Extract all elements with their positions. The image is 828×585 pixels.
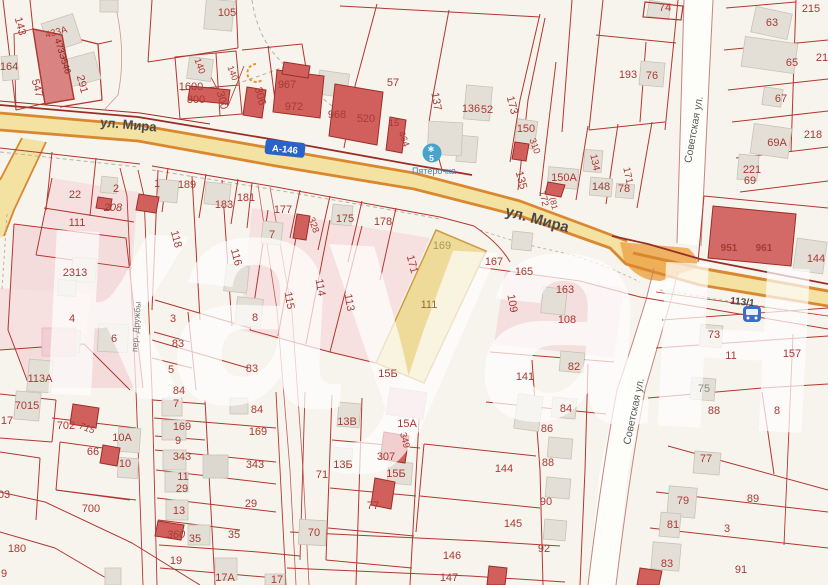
svg-text:189: 189 [178, 179, 196, 191]
svg-text:178: 178 [374, 216, 392, 228]
svg-text:113А: 113А [28, 373, 54, 385]
svg-text:19: 19 [170, 555, 182, 567]
svg-text:77: 77 [367, 500, 379, 512]
svg-text:11: 11 [725, 350, 736, 362]
svg-text:17А: 17А [215, 572, 235, 584]
svg-text:7015: 7015 [15, 400, 39, 412]
svg-text:13Б: 13Б [333, 459, 352, 471]
svg-text:21: 21 [816, 52, 828, 64]
svg-text:702: 702 [57, 420, 75, 432]
svg-text:169: 169 [249, 426, 267, 438]
svg-text:13: 13 [173, 505, 185, 517]
svg-text:300: 300 [187, 94, 205, 106]
svg-text:9: 9 [1, 568, 7, 580]
svg-text:15А: 15А [397, 418, 417, 430]
svg-text:11: 11 [177, 471, 188, 483]
svg-text:83: 83 [246, 363, 258, 375]
svg-text:88: 88 [708, 405, 720, 417]
svg-text:144: 144 [495, 463, 513, 475]
svg-text:3: 3 [724, 523, 730, 535]
svg-text:03: 03 [0, 489, 10, 501]
svg-text:10: 10 [119, 458, 131, 470]
svg-text:1: 1 [154, 178, 160, 190]
svg-text:136: 136 [462, 103, 480, 115]
svg-text:88: 88 [542, 457, 554, 469]
svg-text:82: 82 [568, 361, 580, 373]
svg-text:13В: 13В [337, 416, 357, 428]
svg-text:3: 3 [170, 313, 176, 325]
svg-text:9: 9 [175, 435, 181, 447]
svg-text:343: 343 [246, 459, 264, 471]
svg-text:108: 108 [558, 314, 576, 326]
svg-text:6: 6 [111, 333, 117, 345]
svg-text:81: 81 [667, 519, 679, 531]
svg-text:967: 967 [278, 79, 296, 91]
svg-text:84: 84 [560, 403, 572, 415]
svg-text:92: 92 [538, 543, 550, 555]
svg-text:1600: 1600 [179, 81, 203, 93]
svg-text:218: 218 [804, 129, 822, 141]
svg-text:75: 75 [698, 383, 710, 395]
svg-text:57: 57 [387, 77, 399, 89]
svg-text:74: 74 [659, 2, 671, 14]
svg-text:17: 17 [271, 574, 283, 585]
svg-text:4: 4 [69, 313, 75, 325]
svg-text:961: 961 [756, 243, 773, 254]
svg-text:8: 8 [252, 312, 258, 324]
svg-text:73: 73 [708, 329, 720, 341]
svg-text:69А: 69А [767, 137, 787, 149]
svg-text:2313: 2313 [63, 267, 87, 279]
svg-text:360: 360 [167, 529, 186, 541]
svg-text:215: 215 [802, 3, 820, 15]
svg-text:164: 164 [0, 61, 18, 73]
svg-text:84: 84 [173, 385, 185, 397]
svg-text:89: 89 [747, 493, 759, 505]
svg-text:167: 167 [485, 256, 503, 268]
svg-text:2: 2 [113, 183, 119, 195]
svg-text:520: 520 [357, 113, 375, 125]
svg-text:146: 146 [443, 550, 461, 562]
svg-text:35: 35 [228, 529, 240, 541]
svg-text:145: 145 [504, 518, 522, 530]
svg-text:343: 343 [173, 451, 191, 463]
svg-text:67: 67 [775, 93, 787, 105]
svg-text:79: 79 [677, 495, 689, 507]
svg-text:181: 181 [237, 192, 255, 204]
svg-text:972: 972 [285, 101, 303, 113]
svg-text:15Б: 15Б [378, 368, 397, 380]
svg-text:150: 150 [517, 123, 535, 135]
svg-text:52: 52 [481, 104, 493, 116]
svg-text:5: 5 [429, 153, 434, 163]
svg-text:84: 84 [251, 404, 263, 416]
svg-text:175: 175 [336, 213, 354, 225]
svg-text:83: 83 [661, 558, 673, 570]
svg-text:147: 147 [440, 572, 458, 584]
svg-text:951: 951 [721, 243, 738, 254]
svg-text:35: 35 [189, 533, 201, 545]
svg-text:29: 29 [245, 498, 257, 510]
svg-text:700: 700 [82, 503, 100, 515]
svg-text:86: 86 [541, 423, 553, 435]
svg-text:193: 193 [619, 69, 637, 81]
svg-text:8: 8 [774, 405, 780, 417]
svg-text:н: н [633, 144, 828, 500]
svg-text:83: 83 [172, 338, 184, 350]
svg-text:71: 71 [316, 469, 328, 481]
svg-text:208: 208 [103, 202, 123, 214]
svg-text:307: 307 [377, 451, 395, 463]
svg-text:7: 7 [269, 229, 275, 241]
svg-text:148: 148 [592, 181, 610, 193]
svg-text:17: 17 [1, 415, 13, 427]
svg-text:7: 7 [173, 398, 179, 410]
svg-text:69: 69 [744, 175, 756, 187]
svg-text:5: 5 [168, 364, 174, 376]
svg-text:111: 111 [69, 217, 86, 229]
svg-text:70: 70 [308, 527, 320, 539]
svg-text:65: 65 [786, 57, 798, 69]
svg-text:150А: 150А [551, 172, 577, 184]
svg-text:90: 90 [540, 496, 552, 508]
svg-text:163: 163 [556, 284, 574, 296]
svg-text:77: 77 [700, 453, 712, 465]
svg-text:10А: 10А [112, 432, 132, 444]
svg-text:165: 165 [515, 266, 533, 278]
svg-text:111: 111 [421, 299, 438, 311]
svg-text:169: 169 [433, 240, 451, 252]
svg-text:105: 105 [218, 7, 236, 19]
svg-text:15Б: 15Б [386, 468, 405, 480]
svg-text:157: 157 [783, 348, 801, 360]
svg-text:78: 78 [618, 183, 630, 195]
svg-text:968: 968 [328, 109, 346, 121]
svg-text:169: 169 [173, 421, 191, 433]
svg-text:177: 177 [274, 204, 292, 216]
svg-text:29: 29 [176, 483, 188, 495]
svg-text:91: 91 [735, 564, 747, 576]
svg-text:66: 66 [87, 446, 99, 458]
svg-text:15: 15 [389, 118, 400, 129]
svg-text:22: 22 [69, 189, 81, 201]
svg-text:Пятёрочка: Пятёрочка [412, 166, 456, 176]
svg-text:76: 76 [646, 70, 658, 82]
svg-text:180: 180 [8, 543, 26, 555]
svg-text:144: 144 [807, 253, 825, 265]
svg-text:63: 63 [766, 17, 778, 29]
svg-text:141: 141 [516, 371, 534, 383]
svg-text:183: 183 [215, 199, 233, 211]
